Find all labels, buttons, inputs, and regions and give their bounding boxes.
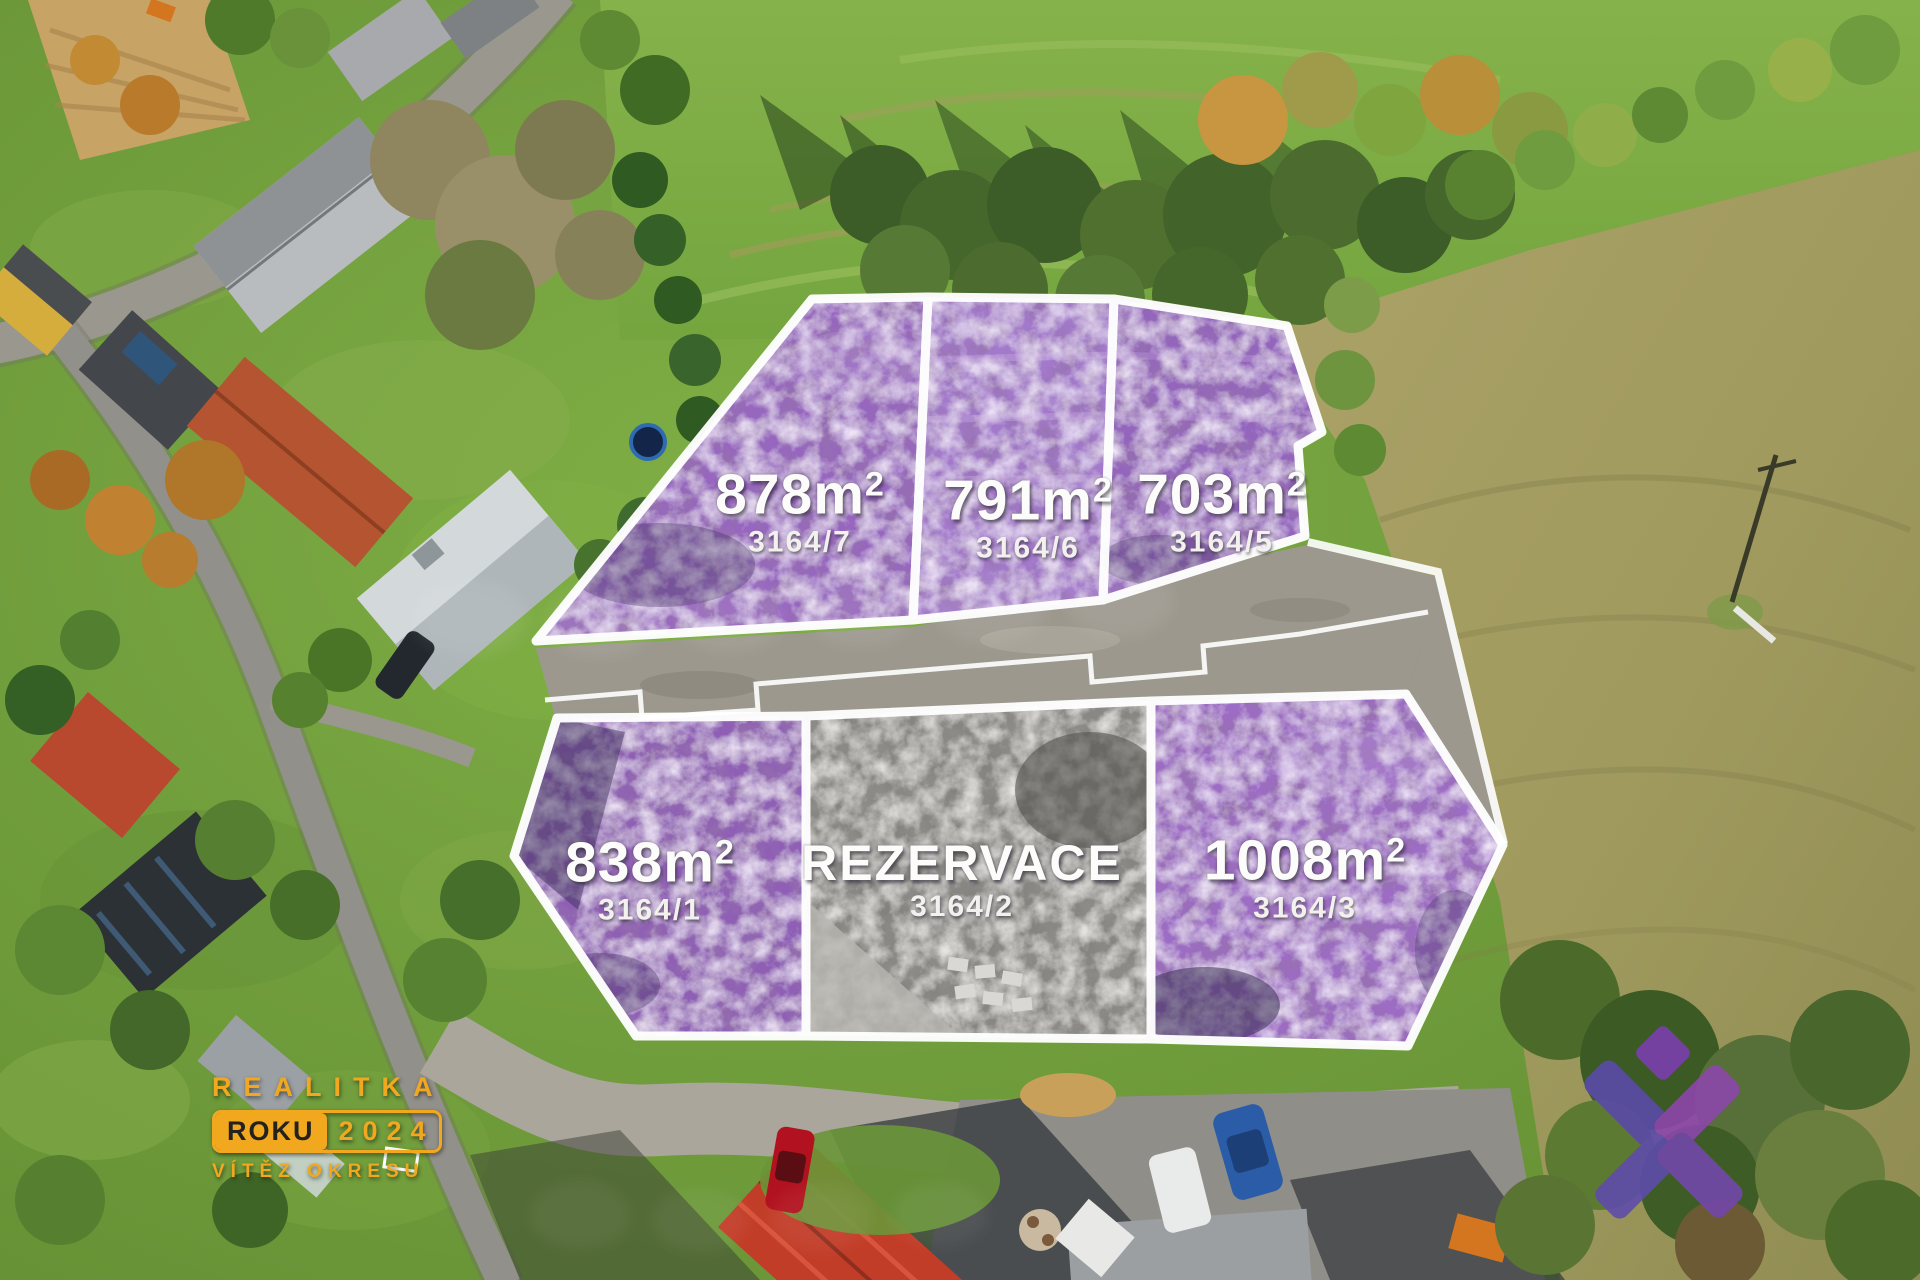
award-badge-title: REALITKA — [212, 1072, 445, 1103]
logo-diamond-icon — [1633, 1023, 1692, 1082]
logo-arm-icon — [1653, 1128, 1746, 1221]
parcel-shape-791 — [913, 297, 1114, 620]
award-badge-subtitle: VÍTĚZ OKRESU — [212, 1161, 445, 1183]
award-badge-box: ROKU 2024 — [212, 1110, 442, 1153]
parcel-shape-rezervace — [806, 701, 1165, 1039]
award-badge: REALITKA ROKU 2024 VÍTĚZ OKRESU — [212, 1072, 445, 1183]
realitka-diamond-x-logo — [1594, 1028, 1734, 1213]
award-badge-word: ROKU — [215, 1113, 327, 1150]
award-badge-year: 2024 — [327, 1113, 439, 1150]
